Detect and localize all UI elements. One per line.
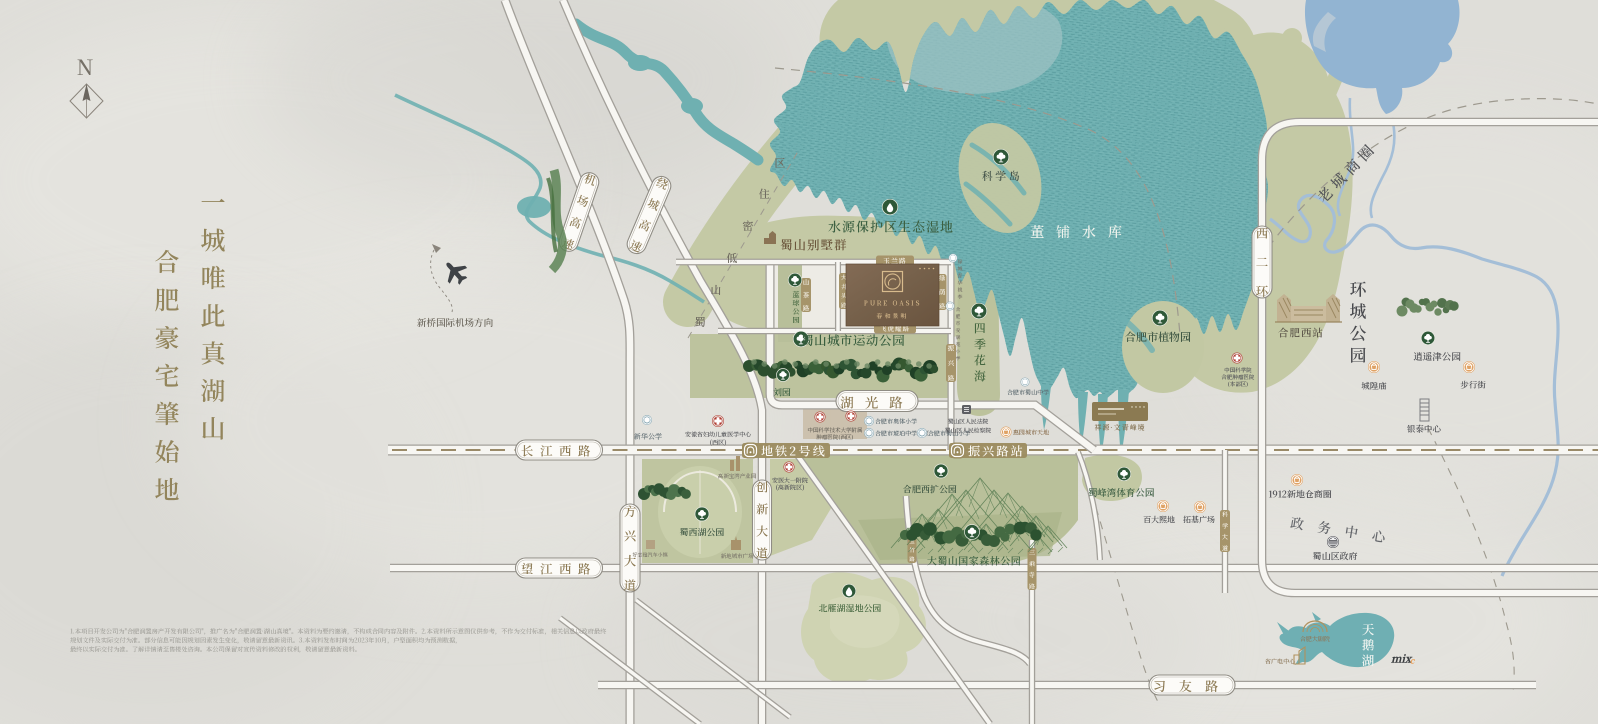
svg-text:山: 山 (200, 410, 225, 446)
svg-text:四: 四 (974, 320, 986, 337)
svg-text:高新宝湾产业园: 高新宝湾产业园 (718, 472, 757, 480)
svg-text:花: 花 (974, 352, 987, 369)
svg-text:蜀峰湾体育公园: 蜀峰湾体育公园 (1088, 485, 1155, 499)
svg-text:合肥市奥体小学: 合肥市奥体小学 (875, 417, 918, 426)
svg-text:方: 方 (624, 502, 637, 520)
svg-text:肇: 肇 (154, 395, 179, 431)
svg-text:振兴路站: 振兴路站 (968, 443, 1025, 460)
svg-text:惠园城市天地: 惠园城市天地 (1013, 428, 1049, 437)
svg-text:海: 海 (974, 368, 986, 385)
svg-text:李: 李 (957, 294, 962, 301)
svg-text:合肥市蜀山中学: 合肥市蜀山中学 (1007, 388, 1050, 397)
svg-text:春和景明: 春和景明 (876, 311, 909, 320)
svg-text:蜀: 蜀 (695, 314, 706, 330)
svg-text:季: 季 (974, 336, 986, 353)
svg-text:合: 合 (956, 306, 961, 313)
svg-text:振: 振 (948, 344, 955, 353)
svg-text:豪: 豪 (154, 319, 179, 355)
svg-text:水源保护区生态湿地: 水源保护区生态湿地 (828, 217, 954, 236)
svg-text:湖光路: 湖光路 (840, 392, 914, 412)
svg-text:拓基广场: 拓基广场 (1183, 515, 1215, 526)
svg-text:住: 住 (759, 186, 770, 202)
svg-text:宅: 宅 (154, 357, 179, 393)
svg-text:1.本项目开发公司为"合肥润置房产开发有限公司"，推广名为": 1.本项目开发公司为"合肥润置房产开发有限公司"，推广名为"合肥润置·湖山真境"… (70, 627, 607, 636)
svg-text:兴: 兴 (948, 359, 955, 368)
svg-text:西: 西 (1256, 224, 1269, 242)
svg-text:(西区): (西区) (710, 438, 727, 447)
svg-text:此: 此 (200, 297, 225, 333)
svg-text:长江西路: 长江西路 (521, 442, 597, 460)
svg-text:低: 低 (727, 250, 738, 266)
svg-text:蜀山区人民检察院: 蜀山区人民检察院 (945, 426, 992, 435)
svg-text:乘: 乘 (1029, 559, 1035, 568)
svg-text:董铺水库: 董铺水库 (1030, 222, 1134, 242)
svg-text:湖: 湖 (200, 372, 225, 408)
svg-text:区: 区 (775, 155, 786, 171)
svg-text:路: 路 (909, 555, 915, 563)
svg-text:合: 合 (154, 243, 179, 279)
svg-text:环: 环 (1256, 282, 1269, 300)
svg-text:肥: 肥 (154, 281, 179, 317)
svg-text:绿: 绿 (939, 274, 946, 283)
svg-text:新: 新 (756, 501, 768, 518)
svg-text:苑: 苑 (956, 341, 961, 348)
svg-text:居: 居 (956, 335, 961, 341)
svg-text:小: 小 (956, 349, 961, 355)
svg-text:望江西路: 望江西路 (521, 560, 597, 578)
svg-text:PURE OASIS: PURE OASIS (864, 299, 921, 308)
svg-text:新桥国际机场方向: 新桥国际机场方向 (417, 315, 493, 329)
svg-text:科学岛: 科学岛 (981, 168, 1023, 184)
svg-text:1912新地仓商圈: 1912新地仓商圈 (1268, 488, 1332, 501)
svg-text:N: N (77, 52, 94, 82)
svg-text:一: 一 (200, 184, 225, 220)
svg-text:路: 路 (1029, 582, 1035, 591)
svg-text:荫: 荫 (939, 288, 946, 297)
svg-text:路: 路 (802, 304, 810, 313)
svg-text:地铁2号线: 地铁2号线 (761, 443, 827, 460)
svg-text:步行街: 步行街 (1460, 379, 1486, 391)
svg-text:湖: 湖 (1361, 651, 1375, 669)
svg-text:城: 城 (956, 266, 962, 273)
svg-text:合肥西扩公园: 合肥西扩公园 (903, 483, 957, 496)
svg-text:安: 安 (956, 327, 961, 334)
svg-text:始: 始 (154, 433, 179, 469)
svg-text:寺: 寺 (1029, 570, 1035, 579)
svg-text:北雁湖湿地公园: 北雁湖湿地公园 (818, 602, 881, 615)
svg-text:道: 道 (624, 576, 637, 594)
svg-text:合肥西站: 合肥西站 (1278, 326, 1324, 341)
svg-text:新地城市广场: 新地城市广场 (720, 552, 754, 560)
svg-text:山: 山 (803, 278, 810, 287)
svg-text:兴: 兴 (624, 527, 637, 545)
svg-text:合肥大剧院: 合肥大剧院 (1300, 634, 1330, 643)
svg-text:大: 大 (1221, 532, 1228, 541)
svg-text:蜀西湖公园: 蜀西湖公园 (679, 526, 724, 539)
svg-text:蜀山别墅群: 蜀山别墅群 (780, 236, 848, 254)
svg-text:二: 二 (1256, 253, 1269, 271)
svg-text:蜀山区人民法院: 蜀山区人民法院 (948, 417, 989, 426)
svg-text:学: 学 (1222, 521, 1229, 530)
svg-text:创: 创 (756, 479, 768, 496)
svg-text:大: 大 (756, 523, 768, 540)
svg-text:习友路: 习友路 (1153, 676, 1232, 695)
svg-text:路: 路 (947, 374, 955, 383)
svg-text:(本部区): (本部区) (1228, 380, 1249, 388)
svg-text:道: 道 (1222, 544, 1228, 553)
svg-text:蜀山区政府: 蜀山区政府 (1312, 550, 1357, 563)
svg-text:唯: 唯 (200, 259, 225, 295)
svg-text:茶: 茶 (803, 291, 810, 300)
svg-text:华: 华 (957, 280, 962, 287)
svg-text:山: 山 (711, 282, 722, 298)
svg-text:合肥市植物园: 合肥市植物园 (1124, 329, 1191, 345)
svg-text:肿瘤医院(西区): 肿瘤医院(西区) (815, 433, 853, 441)
svg-text:大蜀山国家森林公园: 大蜀山国家森林公园 (927, 553, 1022, 568)
svg-text:道: 道 (756, 545, 768, 562)
svg-text:地: 地 (154, 471, 179, 507)
svg-text:育: 育 (957, 273, 962, 280)
svg-text:逍遥津公园: 逍遥津公园 (1413, 349, 1461, 363)
svg-text:肥: 肥 (955, 314, 961, 320)
svg-text:规划文件及实际交付为准。部分信息可能因规划因素发生变化，敬请: 规划文件及实际交付为准。部分信息可能因规划因素发生变化，敬请留意最新资讯。3.本… (70, 636, 461, 645)
svg-text:真: 真 (200, 334, 225, 370)
svg-text:园: 园 (1350, 342, 1367, 367)
svg-text:城: 城 (200, 222, 225, 258)
svg-text:园: 园 (793, 316, 800, 326)
svg-text:新华公学: 新华公学 (633, 432, 663, 442)
svg-text:省广电中心: 省广电中心 (1264, 657, 1295, 666)
svg-text:绿: 绿 (957, 259, 962, 266)
svg-text:最终以实际交付为准。了解详情请至售楼处咨询。本公司保留对宣传: 最终以实际交付为准。了解详情请至售楼处咨询。本公司保留对宣传资料修改的权利，敬请… (70, 645, 361, 654)
svg-text:蜀山城市运动公园: 蜀山城市运动公园 (801, 331, 905, 349)
svg-text:好恋橙汽车小镇: 好恋橙汽车小镇 (631, 552, 668, 559)
svg-text:(高新院区): (高新院区) (776, 483, 805, 492)
svg-text:学: 学 (955, 355, 961, 362)
svg-text:城隍庙: 城隍庙 (1361, 380, 1387, 392)
svg-text:科: 科 (1222, 510, 1228, 519)
svg-text:百大熙地: 百大熙地 (1143, 515, 1175, 526)
svg-text:密: 密 (743, 218, 754, 234)
svg-text:市: 市 (955, 321, 961, 327)
svg-text:祥源·文青峰境: 祥源·文青峰境 (1094, 423, 1145, 433)
svg-text:银泰中心: 银泰中心 (1406, 423, 1442, 435)
svg-text:刘园: 刘园 (773, 386, 791, 399)
